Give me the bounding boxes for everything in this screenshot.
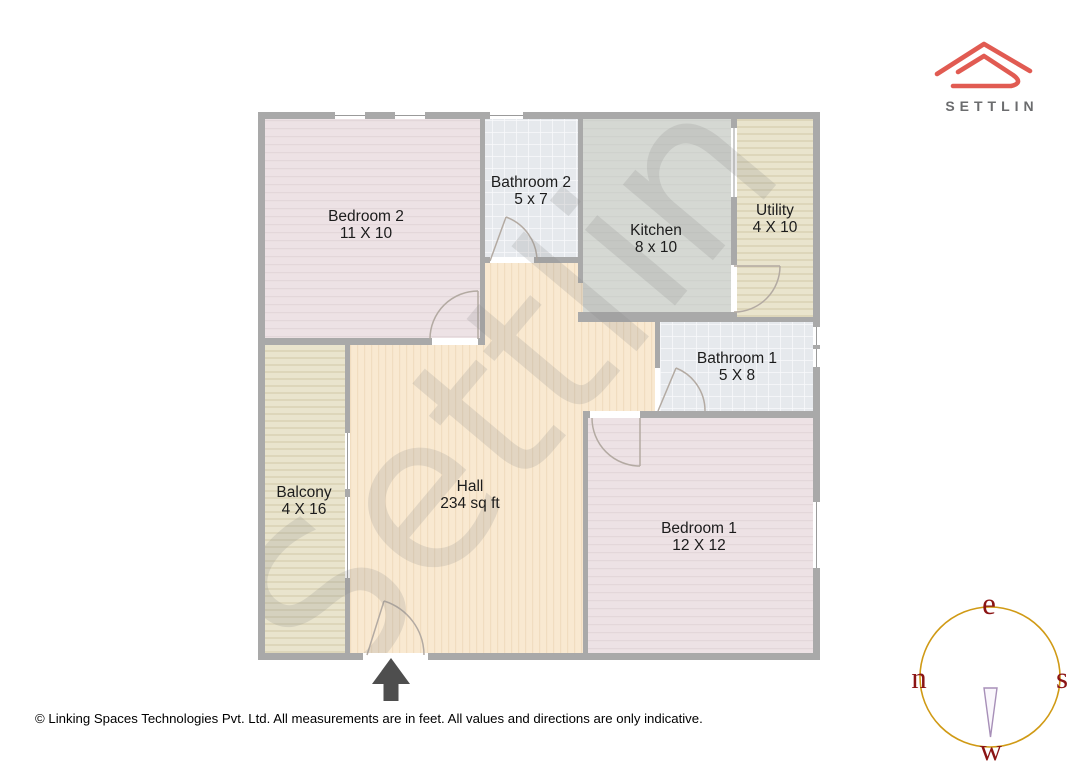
compass-label-south: s — [1056, 660, 1068, 695]
window — [813, 327, 820, 367]
window — [813, 502, 820, 568]
window — [490, 112, 523, 119]
room-kitchen-dims: 8 x 10 — [635, 239, 678, 256]
floor-plan-canvas: Settlin Bedroom 2 11 X 10 Bathroom 2 5 x… — [0, 0, 1080, 764]
wall-segment — [640, 411, 813, 418]
wall-segment — [523, 112, 820, 119]
wall-segment — [428, 653, 820, 660]
room-bedroom-1-dims: 12 X 12 — [672, 537, 725, 554]
brand-logo: SETTLIN — [937, 44, 1039, 114]
window — [335, 112, 365, 119]
room-balcony-label: Balcony — [276, 484, 331, 501]
room-hall-dims: 234 sq ft — [440, 495, 500, 512]
room-bathroom-1-label: Bathroom 1 — [697, 350, 777, 367]
wall-segment — [258, 119, 265, 660]
window — [395, 112, 425, 119]
room-bathroom-2-label: Bathroom 2 — [491, 174, 571, 191]
room-bedroom-2-label: Bedroom 2 — [328, 208, 404, 225]
room-kitchen-label: Kitchen — [630, 222, 682, 239]
room-bedroom-1-label: Bedroom 1 — [661, 520, 737, 537]
wall-segment — [258, 653, 363, 660]
room-bathroom-1-dims: 5 X 8 — [719, 367, 755, 384]
wall-segment — [425, 112, 490, 119]
compass-label-east: e — [982, 586, 996, 621]
wall-segment — [813, 568, 820, 660]
room-bedroom-2-dims: 11 X 10 — [340, 225, 393, 242]
compass-rose: e n s w — [911, 586, 1068, 764]
entrance-arrow-icon — [372, 658, 410, 701]
footer-disclaimer: © Linking Spaces Technologies Pvt. Ltd. … — [35, 711, 703, 726]
room-bathroom-2-dims: 5 x 7 — [514, 191, 548, 208]
brand-name: SETTLIN — [945, 98, 1038, 114]
room-hall-label: Hall — [457, 478, 484, 495]
room-utility-label: Utility — [756, 202, 794, 219]
wall-segment — [813, 119, 820, 327]
floor-plan-page: Settlin Bedroom 2 11 X 10 Bathroom 2 5 x… — [0, 0, 1080, 764]
wall-segment — [258, 112, 335, 119]
wall-segment — [813, 367, 820, 502]
wall-segment — [365, 112, 395, 119]
compass-label-north: n — [911, 660, 927, 695]
compass-label-west: w — [980, 732, 1003, 764]
door-opening-entrance — [363, 653, 428, 660]
room-balcony-dims: 4 X 16 — [282, 501, 327, 518]
compass-needle-icon — [984, 688, 997, 737]
room-utility-dims: 4 X 10 — [753, 219, 798, 236]
